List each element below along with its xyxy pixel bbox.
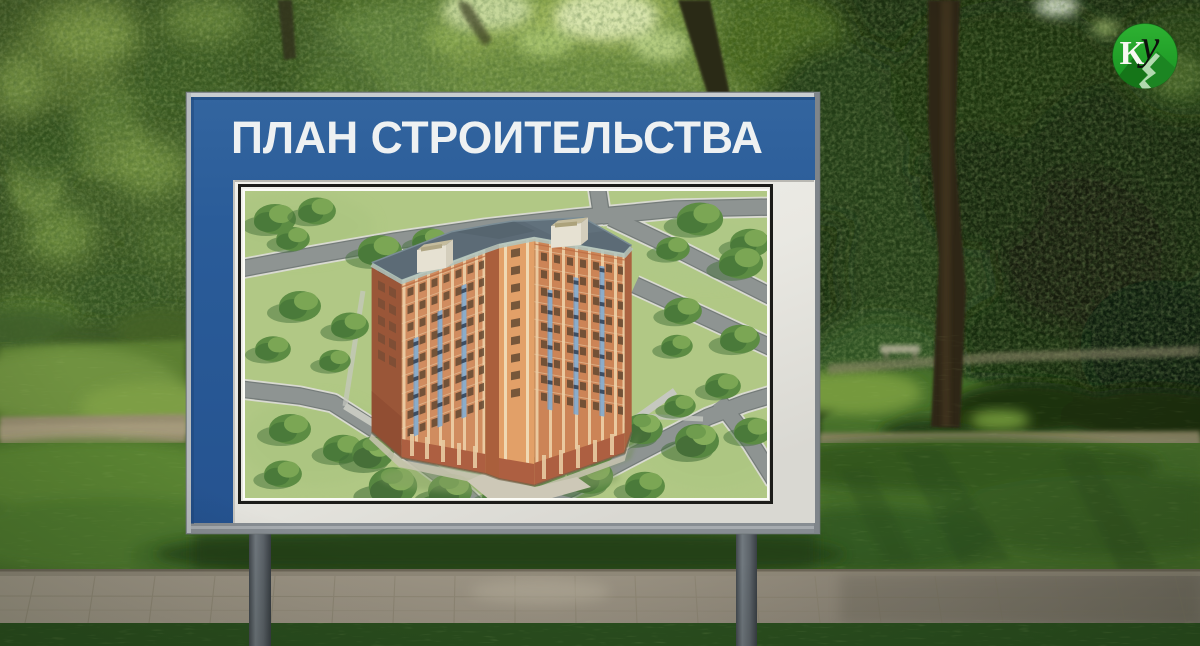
- svg-text:у: у: [1137, 23, 1160, 69]
